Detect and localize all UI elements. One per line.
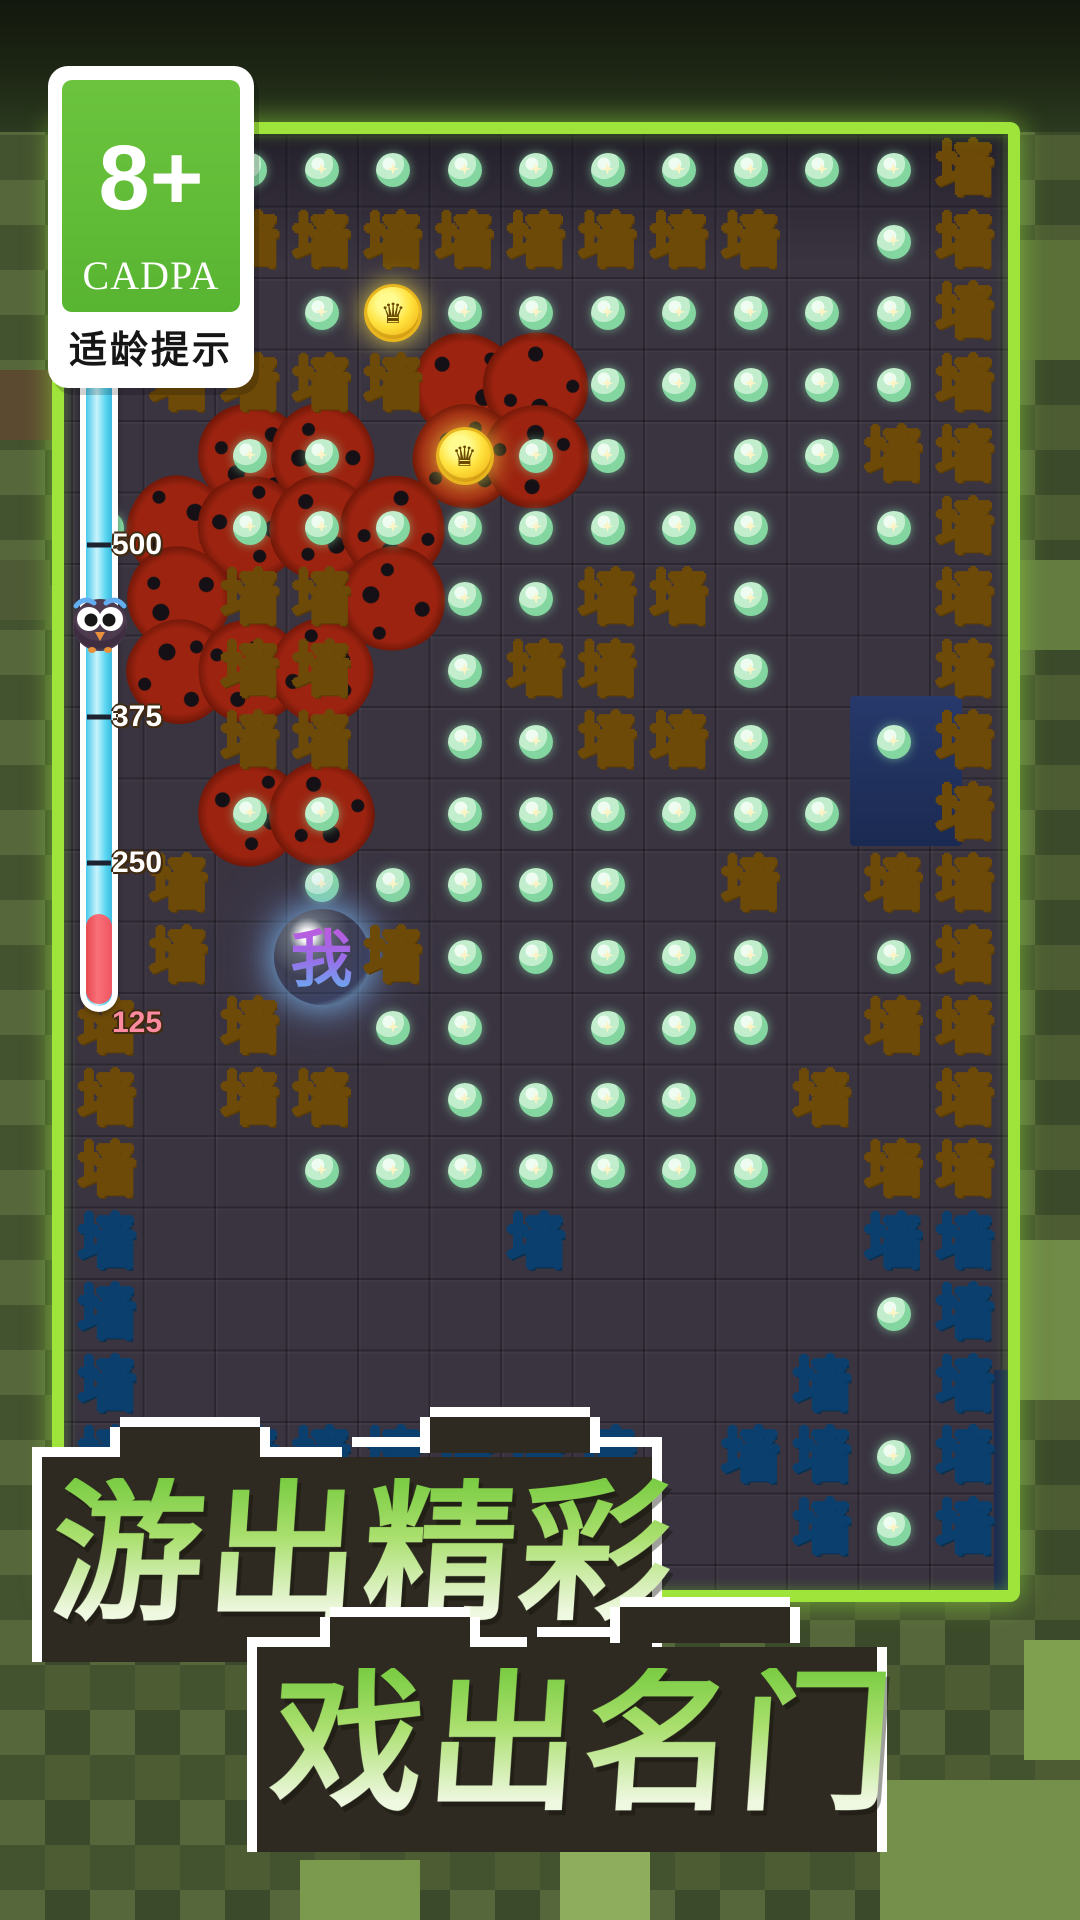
pearl-dot bbox=[591, 797, 625, 831]
camo-patch bbox=[1020, 1240, 1080, 1400]
pearl-dot bbox=[305, 511, 339, 545]
slogan-step bbox=[330, 1617, 470, 1651]
game-screenshot: 墙墙墙墙墙墙墙墙墙墙♛墙墙墙墙墙墙♛墙墙墙墙墙墙墙墙墙墙墙墙墙墙墙墙墙墙墙墙墙墙… bbox=[0, 0, 1080, 1920]
pearl-dot bbox=[519, 940, 553, 974]
age-rating: 8+ bbox=[62, 132, 240, 224]
meter-tick-label: 250 bbox=[112, 846, 162, 880]
pearl-dot bbox=[305, 1154, 339, 1188]
pearl-dot bbox=[591, 1083, 625, 1117]
wall-tile-gold: 墙 bbox=[143, 921, 215, 993]
pearl-dot bbox=[734, 940, 768, 974]
slogan-text-1: 游出精彩 bbox=[47, 1478, 682, 1630]
pearl-dot bbox=[305, 868, 339, 902]
pearl-dot bbox=[877, 1512, 911, 1546]
pearl-dot bbox=[448, 654, 482, 688]
wall-tile-gold: 墙 bbox=[286, 206, 358, 278]
crown-icon: ♛ bbox=[452, 440, 477, 473]
pearl-dot bbox=[734, 654, 768, 688]
cadpa-label: CADPA bbox=[62, 252, 240, 299]
wall-tile-gold: 墙 bbox=[214, 563, 286, 635]
pearl-dot bbox=[805, 296, 839, 330]
pearl-dot bbox=[519, 582, 553, 616]
pearl-dot bbox=[519, 511, 553, 545]
pearl-dot bbox=[233, 797, 267, 831]
pearl-dot bbox=[734, 582, 768, 616]
wall-tile-blue: 墙 bbox=[929, 1421, 1001, 1493]
pearl-dot bbox=[519, 797, 553, 831]
pearl-dot bbox=[591, 868, 625, 902]
pearl-dot bbox=[591, 940, 625, 974]
wall-tile-gold: 墙 bbox=[500, 635, 572, 707]
wall-tile-blue: 墙 bbox=[786, 1350, 858, 1422]
wall-tile-gold: 墙 bbox=[929, 563, 1001, 635]
pearl-dot bbox=[662, 1083, 696, 1117]
wall-tile-gold: 墙 bbox=[643, 206, 715, 278]
pearl-dot bbox=[448, 940, 482, 974]
wall-tile-gold: 墙 bbox=[929, 706, 1001, 778]
wall-tile-gold: 墙 bbox=[858, 1135, 930, 1207]
wall-tile-blue: 墙 bbox=[786, 1421, 858, 1493]
wall-tile-gold: 墙 bbox=[572, 563, 644, 635]
pearl-dot bbox=[376, 868, 410, 902]
pearl-dot bbox=[376, 1011, 410, 1045]
meter-tube bbox=[80, 346, 118, 1012]
pearl-dot bbox=[734, 1154, 768, 1188]
wall-tile-blue: 墙 bbox=[929, 1278, 1001, 1350]
wall-tile-gold: 墙 bbox=[929, 849, 1001, 921]
pearl-dot bbox=[519, 868, 553, 902]
pearl-dot bbox=[662, 797, 696, 831]
wall-tile-gold: 墙 bbox=[214, 1064, 286, 1136]
wall-tile-gold: 墙 bbox=[214, 635, 286, 707]
pearl-dot bbox=[662, 511, 696, 545]
slogan-text-2: 戏出名门 bbox=[267, 1668, 902, 1820]
meter-tick-dash bbox=[87, 543, 111, 548]
crown-coin: ♛ bbox=[436, 427, 494, 485]
camo-patch bbox=[300, 1860, 420, 1920]
pearl-dot bbox=[877, 725, 911, 759]
pearl-dot bbox=[591, 1011, 625, 1045]
pearl-dot bbox=[519, 296, 553, 330]
pearl-dot bbox=[591, 511, 625, 545]
player-label: 我 bbox=[290, 908, 352, 998]
wall-tile-gold: 墙 bbox=[357, 921, 429, 993]
pearl-dot bbox=[734, 725, 768, 759]
pearl-dot bbox=[734, 153, 768, 187]
pearl-dot bbox=[519, 439, 553, 473]
pearl-dot bbox=[448, 1154, 482, 1188]
pearl-dot bbox=[448, 797, 482, 831]
pearl-dot bbox=[805, 153, 839, 187]
wall-tile-gold: 墙 bbox=[929, 134, 1001, 206]
pearl-dot bbox=[662, 368, 696, 402]
pearl-dot bbox=[877, 1440, 911, 1474]
wall-tile-gold: 墙 bbox=[715, 206, 787, 278]
pearl-dot bbox=[305, 797, 339, 831]
pearl-dot bbox=[662, 1011, 696, 1045]
wall-tile-gold: 墙 bbox=[929, 420, 1001, 492]
pearl-dot bbox=[448, 868, 482, 902]
wall-tile-blue: 墙 bbox=[929, 1493, 1001, 1565]
pearl-dot bbox=[376, 153, 410, 187]
pearl-dot bbox=[662, 1154, 696, 1188]
wall-tile-gold: 墙 bbox=[286, 635, 358, 707]
pearl-dot bbox=[734, 1011, 768, 1045]
pearl-dot bbox=[877, 153, 911, 187]
badge-green-panel: 8+ CADPA bbox=[62, 80, 240, 312]
pearl-dot bbox=[877, 296, 911, 330]
wall-tile-gold: 墙 bbox=[929, 1064, 1001, 1136]
wall-tile-gold: 墙 bbox=[357, 206, 429, 278]
wall-tile-gold: 墙 bbox=[786, 1064, 858, 1136]
camo-patch bbox=[0, 370, 52, 440]
wall-tile-gold: 墙 bbox=[929, 635, 1001, 707]
wall-tile-gold: 墙 bbox=[858, 420, 930, 492]
pearl-dot bbox=[448, 153, 482, 187]
wall-tile-gold: 墙 bbox=[929, 992, 1001, 1064]
pearl-dot bbox=[877, 511, 911, 545]
pearl-dot bbox=[591, 153, 625, 187]
wall-tile-blue: 墙 bbox=[71, 1278, 143, 1350]
wall-tile-blue: 墙 bbox=[786, 1493, 858, 1565]
wall-tile-gold: 墙 bbox=[929, 277, 1001, 349]
camo-patch bbox=[1020, 560, 1080, 650]
pearl-dot bbox=[591, 296, 625, 330]
meter-fill bbox=[86, 352, 112, 1006]
camo-patch bbox=[1024, 1640, 1080, 1760]
pearl-dot bbox=[233, 439, 267, 473]
pearl-dot bbox=[233, 511, 267, 545]
pearl-dot bbox=[805, 439, 839, 473]
meter-red-zone bbox=[86, 914, 112, 1004]
pearl-dot bbox=[591, 1154, 625, 1188]
pearl-dot bbox=[877, 1297, 911, 1331]
pearl-dot bbox=[305, 153, 339, 187]
wall-tile-blue: 墙 bbox=[929, 1207, 1001, 1279]
wall-tile-gold: 墙 bbox=[500, 206, 572, 278]
wall-tile-gold: 墙 bbox=[572, 635, 644, 707]
pearl-dot bbox=[591, 368, 625, 402]
wall-tile-gold: 墙 bbox=[429, 206, 501, 278]
pearl-dot bbox=[448, 1011, 482, 1045]
pearl-dot bbox=[376, 511, 410, 545]
wall-tile-gold: 墙 bbox=[929, 778, 1001, 850]
pearl-dot bbox=[519, 725, 553, 759]
wall-tile-gold: 墙 bbox=[715, 849, 787, 921]
wall-tile-blue: 墙 bbox=[858, 1207, 930, 1279]
wall-tile-blue: 墙 bbox=[715, 1421, 787, 1493]
wall-tile-gold: 墙 bbox=[214, 706, 286, 778]
pearl-dot bbox=[734, 439, 768, 473]
wall-tile-blue: 墙 bbox=[71, 1207, 143, 1279]
pearl-dot bbox=[805, 797, 839, 831]
crown-icon: ♛ bbox=[380, 297, 405, 330]
pearl-dot bbox=[519, 1083, 553, 1117]
camo-patch bbox=[880, 1780, 1080, 1920]
owl-icon bbox=[70, 592, 130, 654]
meter-tick-label: 125 bbox=[112, 1006, 162, 1040]
pearl-dot bbox=[662, 940, 696, 974]
crown-coin: ♛ bbox=[364, 284, 422, 342]
pearl-dot bbox=[519, 1154, 553, 1188]
age-caption: 适龄提示 bbox=[48, 319, 254, 374]
wall-tile-gold: 墙 bbox=[929, 349, 1001, 421]
pearl-dot bbox=[305, 439, 339, 473]
wall-tile-gold: 墙 bbox=[929, 492, 1001, 564]
wall-tile-blue: 墙 bbox=[500, 1207, 572, 1279]
meter-tick-label: 500 bbox=[112, 528, 162, 562]
wall-tile-gold: 墙 bbox=[858, 849, 930, 921]
wall-tile-gold: 墙 bbox=[214, 992, 286, 1064]
wall-tile-gold: 墙 bbox=[929, 206, 1001, 278]
pearl-dot bbox=[448, 296, 482, 330]
camo-patch bbox=[1020, 240, 1080, 360]
pearl-dot bbox=[734, 511, 768, 545]
pearl-dot bbox=[448, 1083, 482, 1117]
pearl-dot bbox=[734, 368, 768, 402]
wall-tile-blue: 墙 bbox=[71, 1350, 143, 1422]
pearl-dot bbox=[591, 439, 625, 473]
wall-tile-gold: 墙 bbox=[858, 992, 930, 1064]
pearl-dot bbox=[805, 368, 839, 402]
wall-tile-gold: 墙 bbox=[929, 1135, 1001, 1207]
wall-tile-gold: 墙 bbox=[572, 206, 644, 278]
wall-tile-gold: 墙 bbox=[643, 706, 715, 778]
pearl-dot bbox=[877, 368, 911, 402]
player-bubble[interactable]: 我 bbox=[274, 909, 370, 1005]
pearl-dot bbox=[877, 225, 911, 259]
pearl-dot bbox=[305, 296, 339, 330]
slogan-outline bbox=[247, 1637, 257, 1852]
pearl-dot bbox=[448, 511, 482, 545]
pearl-dot bbox=[448, 582, 482, 616]
pearl-dot bbox=[662, 153, 696, 187]
cadpa-age-badge: 8+ CADPA 适龄提示 bbox=[48, 66, 254, 388]
pearl-dot bbox=[448, 725, 482, 759]
pearl-dot bbox=[734, 296, 768, 330]
slogan-step bbox=[430, 1417, 590, 1453]
pearl-dot bbox=[662, 296, 696, 330]
pearl-dot bbox=[734, 797, 768, 831]
slogan-outline bbox=[32, 1447, 42, 1662]
wall-tile-gold: 墙 bbox=[929, 921, 1001, 993]
pearl-dot bbox=[519, 153, 553, 187]
meter-tick-label: 375 bbox=[112, 700, 162, 734]
wall-tile-gold: 墙 bbox=[286, 349, 358, 421]
wall-tile-gold: 墙 bbox=[357, 349, 429, 421]
wall-tile-gold: 墙 bbox=[572, 706, 644, 778]
wall-tile-blue: 墙 bbox=[929, 1350, 1001, 1422]
pearl-dot bbox=[376, 1154, 410, 1188]
camo-patch bbox=[560, 1840, 650, 1920]
slogan-step bbox=[620, 1607, 790, 1643]
meter-tick-dash bbox=[87, 861, 111, 866]
meter-tick-dash bbox=[87, 715, 111, 720]
wall-tile-gold: 墙 bbox=[286, 706, 358, 778]
wall-tile-gold: 墙 bbox=[71, 1135, 143, 1207]
wall-tile-gold: 墙 bbox=[71, 1064, 143, 1136]
wall-tile-gold: 墙 bbox=[286, 563, 358, 635]
camo-patch bbox=[0, 560, 50, 620]
wall-tile-gold: 墙 bbox=[643, 563, 715, 635]
wall-tile-gold: 墙 bbox=[286, 1064, 358, 1136]
pearl-dot bbox=[877, 940, 911, 974]
